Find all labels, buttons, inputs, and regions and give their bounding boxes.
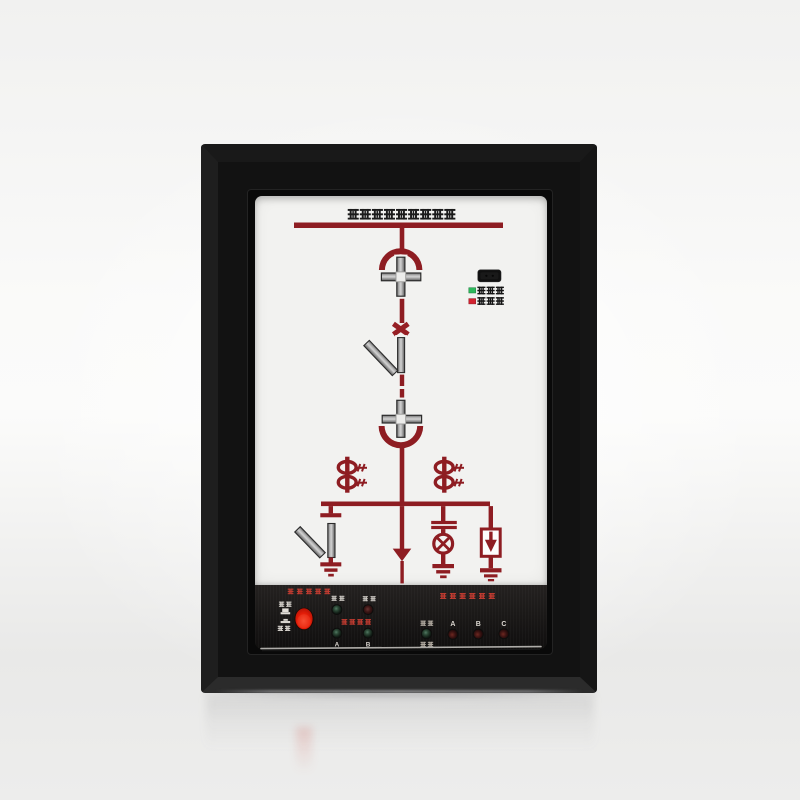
svg-text:A: A bbox=[450, 621, 455, 628]
svg-text:C: C bbox=[501, 621, 506, 628]
svg-text:B: B bbox=[476, 621, 481, 628]
